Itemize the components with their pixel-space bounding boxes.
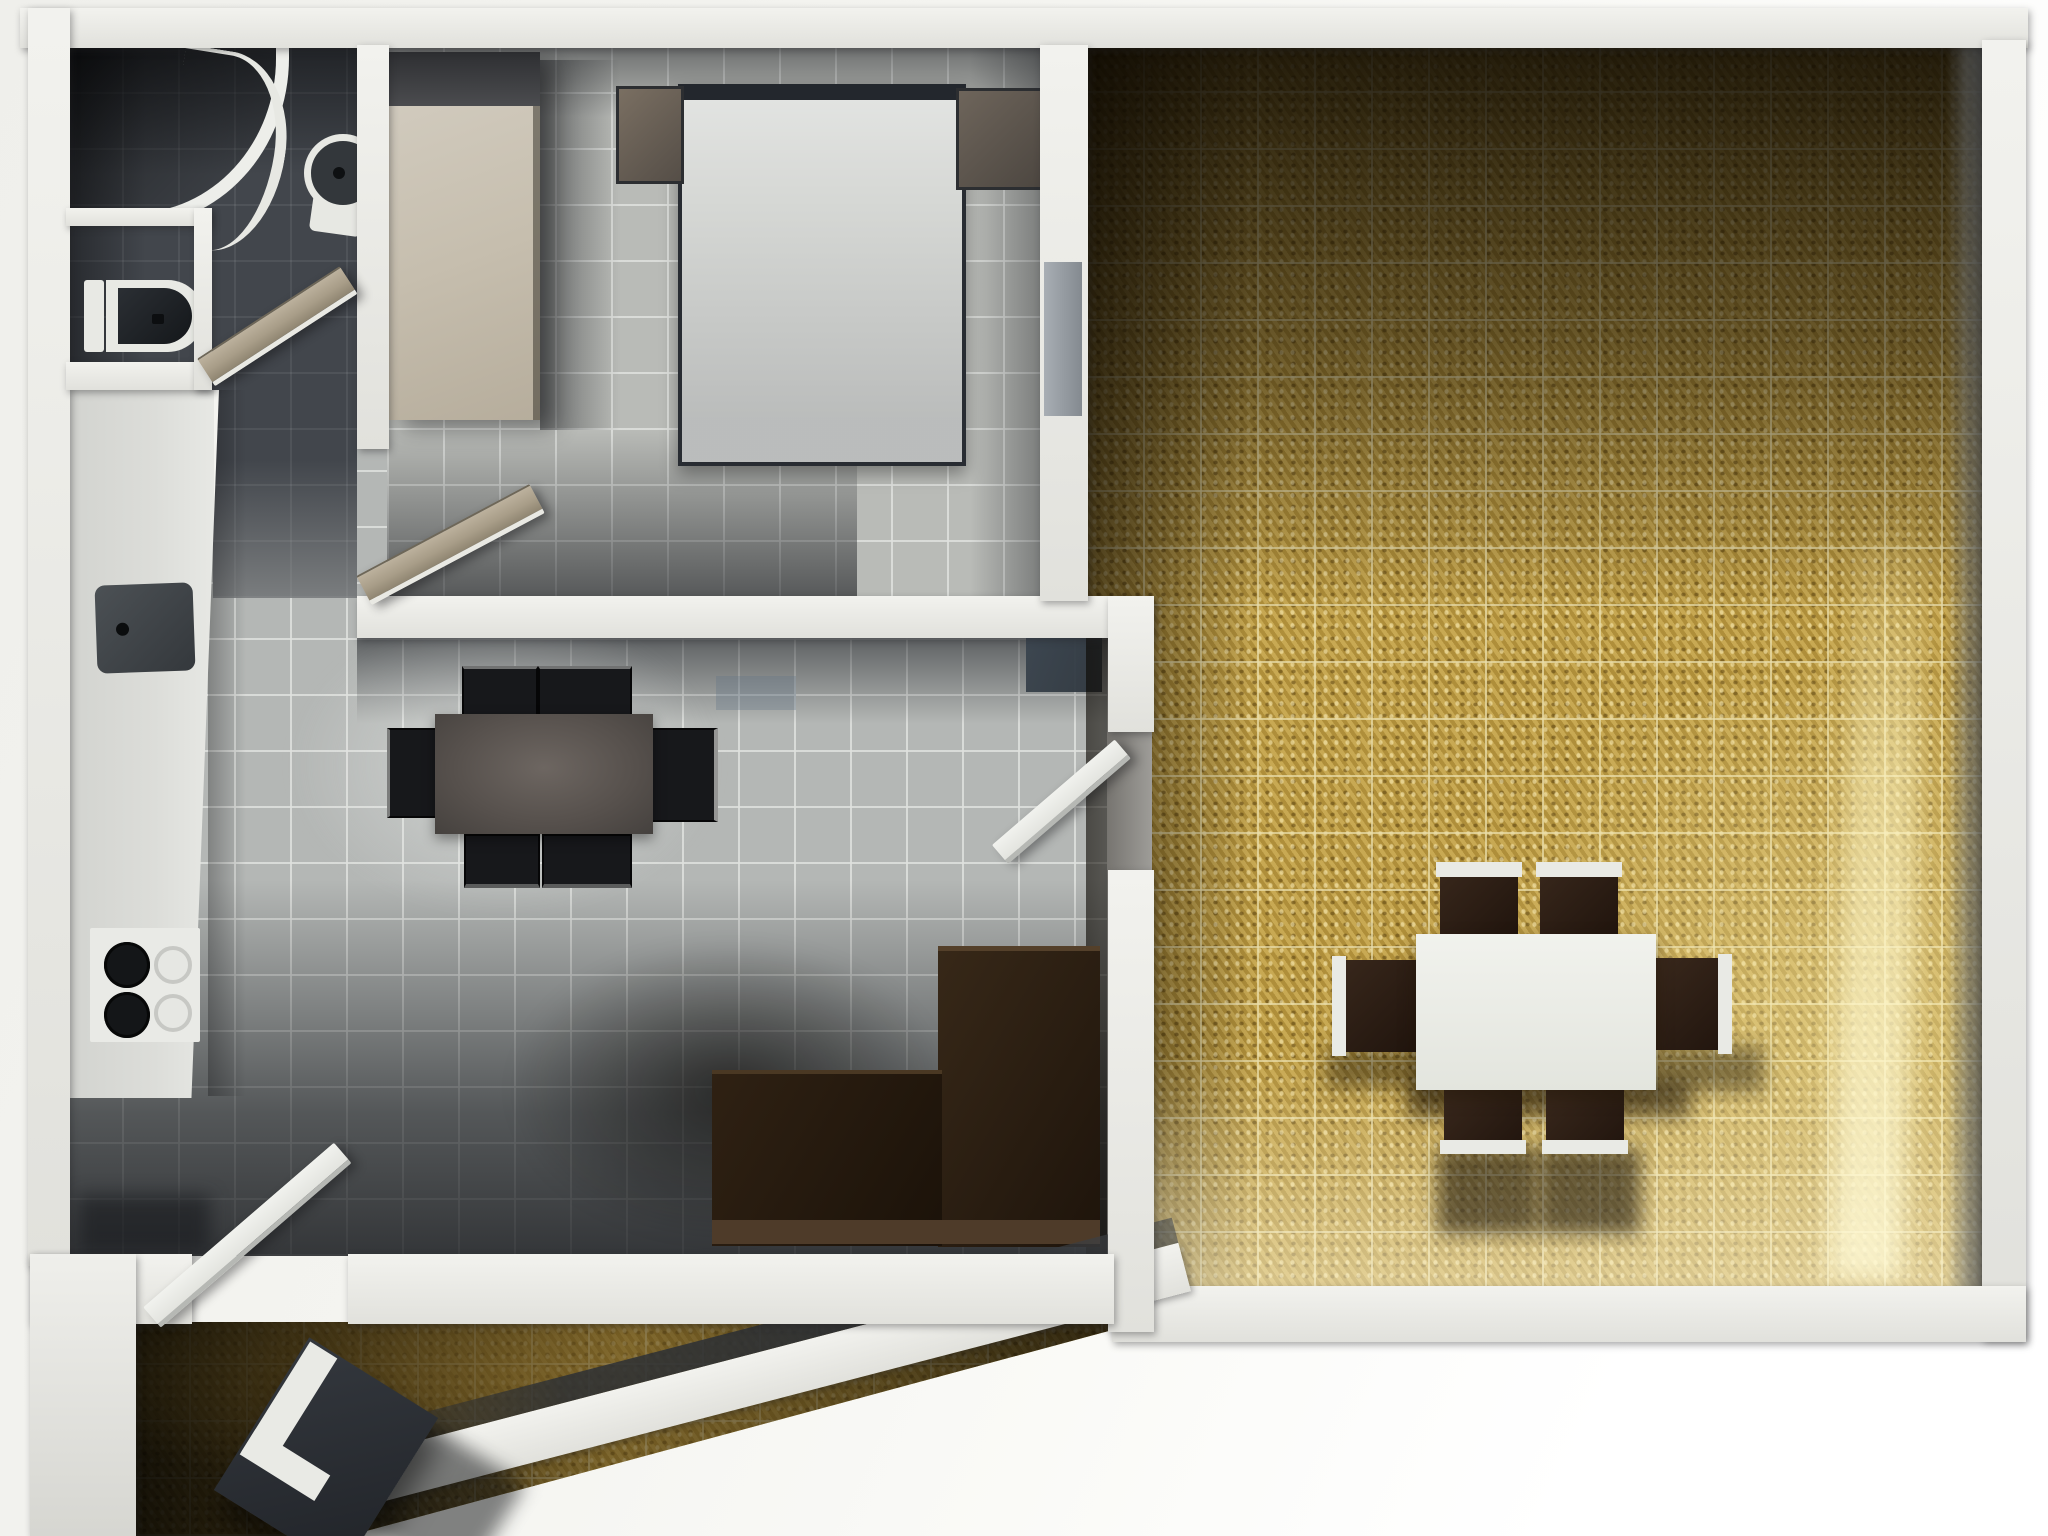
wall-kitchen-bottom-right: [348, 1254, 1114, 1324]
double-bed: [678, 84, 966, 466]
burner-black-2: [104, 992, 150, 1038]
wall-outer-top: [20, 8, 2028, 48]
kitchen-sink: [94, 582, 195, 673]
corner-sofa-base: [712, 1220, 1100, 1244]
sink-faucet-dot: [116, 623, 129, 636]
chair-rail: [1332, 956, 1346, 1056]
bed-duvet-shading: [682, 100, 962, 462]
living-chair-shadow-2: [1540, 1148, 1640, 1234]
chair-rail: [1718, 954, 1732, 1054]
toilet-tank: [84, 280, 104, 352]
kitchen-table: [435, 714, 653, 834]
nightstand-right: [956, 88, 1046, 190]
dining-chair-top-1: [1440, 862, 1518, 938]
wall-outer-right: [1982, 40, 2026, 1340]
corner-sofa-vertical: [938, 946, 1100, 1247]
burner-white-1: [154, 946, 192, 984]
floorplan-render: [0, 0, 2048, 1536]
living-chair-shadow-4: [1652, 1046, 1764, 1092]
wall-bathroom-right: [357, 45, 389, 449]
wall-bedroom-kitchen: [357, 596, 1153, 638]
living-chair-shadow-1: [1438, 1148, 1538, 1234]
basin-drain: [333, 167, 345, 179]
chair-rail: [1436, 862, 1522, 877]
wardrobe: [388, 52, 540, 420]
chair-rail: [1536, 862, 1622, 877]
wall-outer-left: [28, 8, 70, 1266]
wardrobe-top-panel: [388, 52, 540, 106]
wall-kitchen-living-lower: [1108, 870, 1154, 1332]
bedroom-living-door-closed: [1044, 262, 1082, 416]
burner-black-1: [104, 942, 150, 988]
dining-chair-right: [1656, 958, 1732, 1050]
kitchen-chair-bottom-2: [542, 834, 632, 888]
dining-chair-bottom-2: [1546, 1090, 1624, 1154]
kitchen-chair-left: [387, 728, 438, 818]
nightstand-left: [616, 86, 684, 184]
dining-chair-left: [1332, 960, 1418, 1052]
dining-table-white: [1416, 934, 1656, 1090]
right-wall-inner-face: [1946, 45, 1984, 1333]
dining-chair-top-2: [1540, 862, 1618, 938]
stove: [90, 928, 200, 1042]
wall-shower-divider: [66, 208, 212, 226]
wall-wc-bottom: [66, 362, 212, 390]
kitchen-chair-top-2: [538, 666, 632, 721]
bedroom-shadow-wardrobe: [540, 60, 620, 430]
dining-chair-bottom-1: [1444, 1090, 1522, 1154]
burner-white-2: [154, 994, 192, 1032]
kitchen-chair-right: [648, 728, 718, 822]
kitchen-chair-top-1: [462, 666, 538, 721]
toilet-flush-dot: [152, 314, 164, 324]
wall-kitchen-living-upper: [1108, 596, 1154, 732]
wall-living-bottom: [1112, 1286, 2026, 1342]
kitchen-shadow-counter-end: [78, 1195, 210, 1255]
chair-rail: [1542, 1140, 1628, 1154]
wall-entry-left: [30, 1254, 136, 1536]
wardrobe-side-edge: [533, 106, 540, 420]
chair-rail: [1440, 1140, 1526, 1154]
kitchen-chair-bottom-1: [464, 834, 540, 888]
kitchen-small-mat: [716, 676, 796, 710]
